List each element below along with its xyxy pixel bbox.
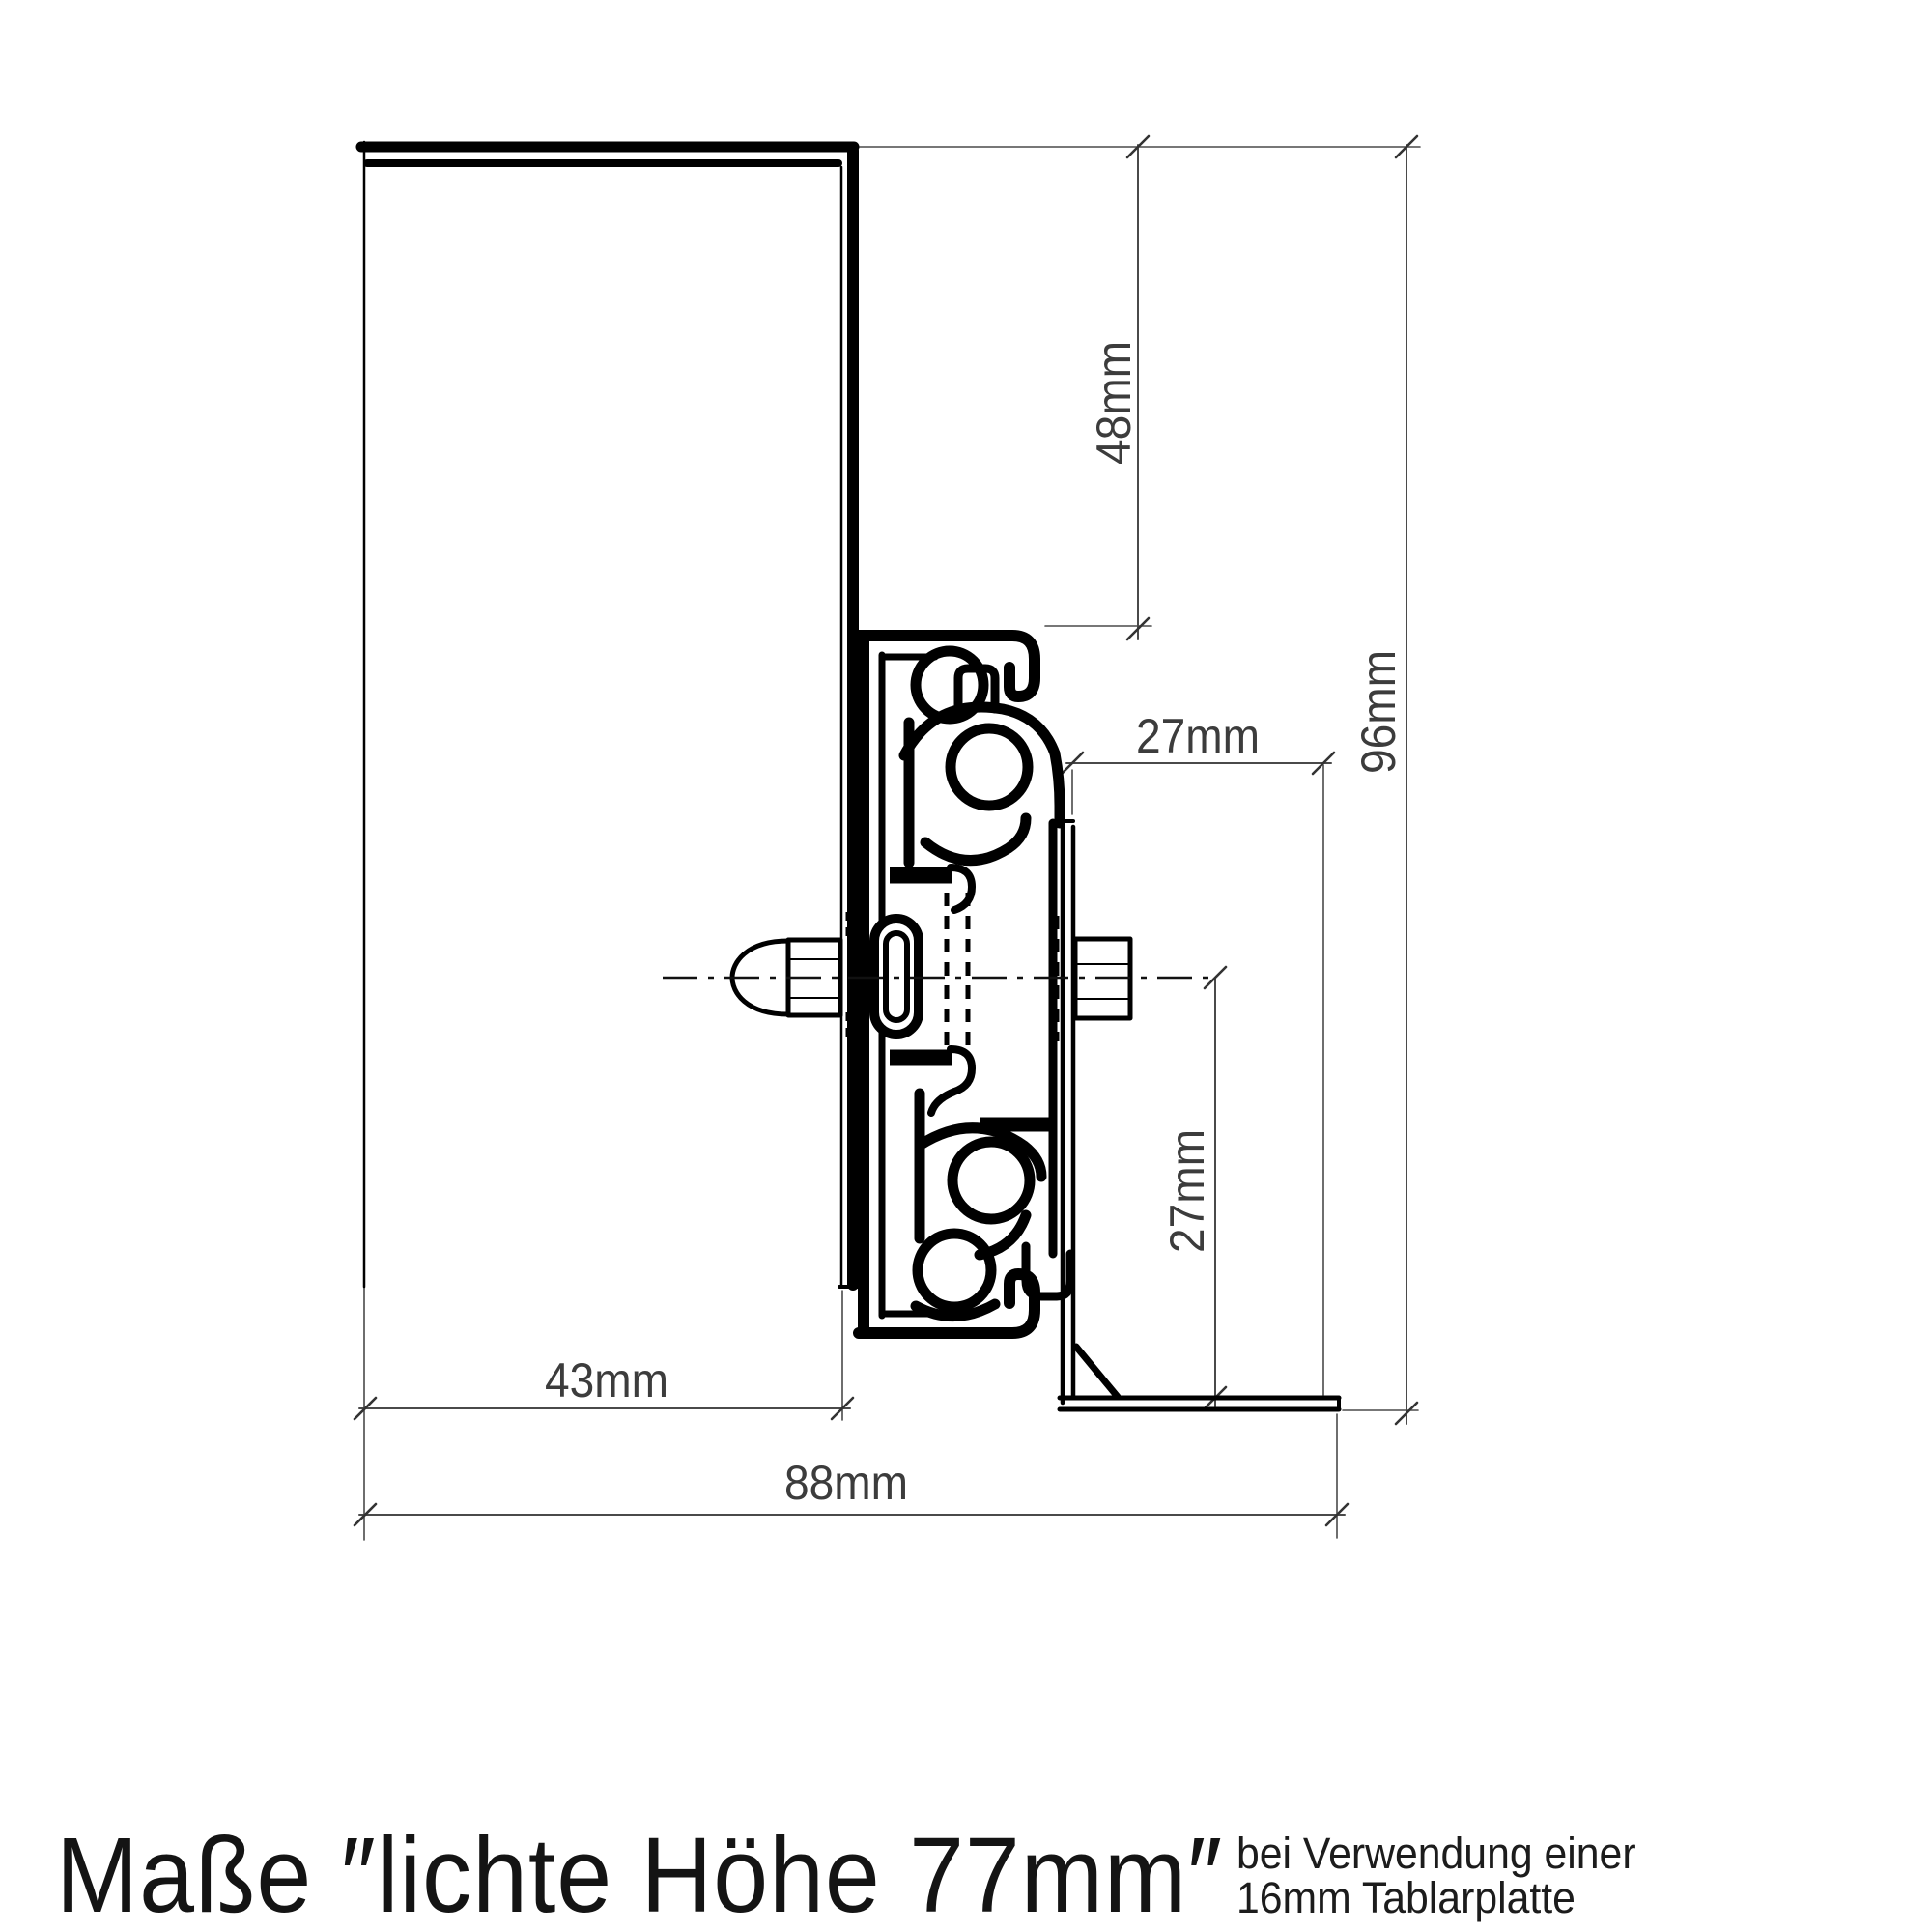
ball-top-large (951, 728, 1028, 806)
ball-bottom-small (918, 1234, 991, 1307)
drawing-title: Maße ″lichte Höhe 77mm″ (56, 1814, 1242, 1932)
note-line-2: 16mm Tablarplatte (1236, 1876, 1636, 1920)
label-48mm: 48mm (1087, 341, 1141, 465)
cabinet-panel (361, 142, 860, 1287)
label-43mm: 43mm (545, 1353, 668, 1407)
label-96mm: 96mm (1351, 650, 1406, 774)
technical-drawing-page: 48mm 96mm 27mm 27mm 43mm 88mm (0, 0, 1932, 1932)
bracket-gusset (1076, 1347, 1118, 1397)
label-88mm: 88mm (784, 1456, 908, 1510)
shelf-bracket (1060, 820, 1339, 1409)
drawing-note: bei Verwendung einer 16mm Tablarplatte (1236, 1832, 1636, 1921)
drawer-slide-cross-section: 48mm 96mm 27mm 27mm 43mm 88mm (0, 0, 1932, 1932)
label-27mm-vertical: 27mm (1160, 1129, 1214, 1253)
note-line-1: bei Verwendung einer (1236, 1832, 1636, 1876)
label-27mm-horizontal: 27mm (1136, 709, 1260, 763)
retainer-top-cradle (925, 818, 1026, 861)
hidden-lines (947, 893, 1057, 1051)
ball-bottom-large (952, 1142, 1030, 1219)
retainer-to-plate (1055, 753, 1060, 823)
